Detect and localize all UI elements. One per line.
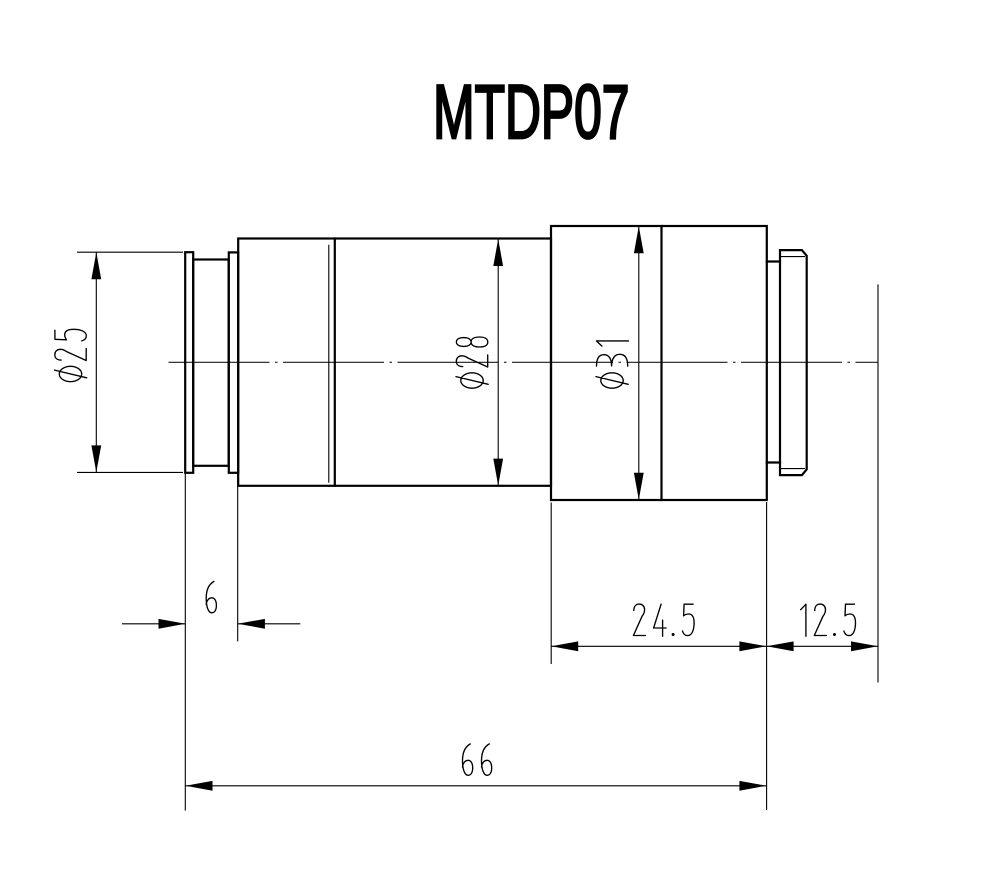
svg-text:MTDP07: MTDP07 <box>433 69 629 154</box>
